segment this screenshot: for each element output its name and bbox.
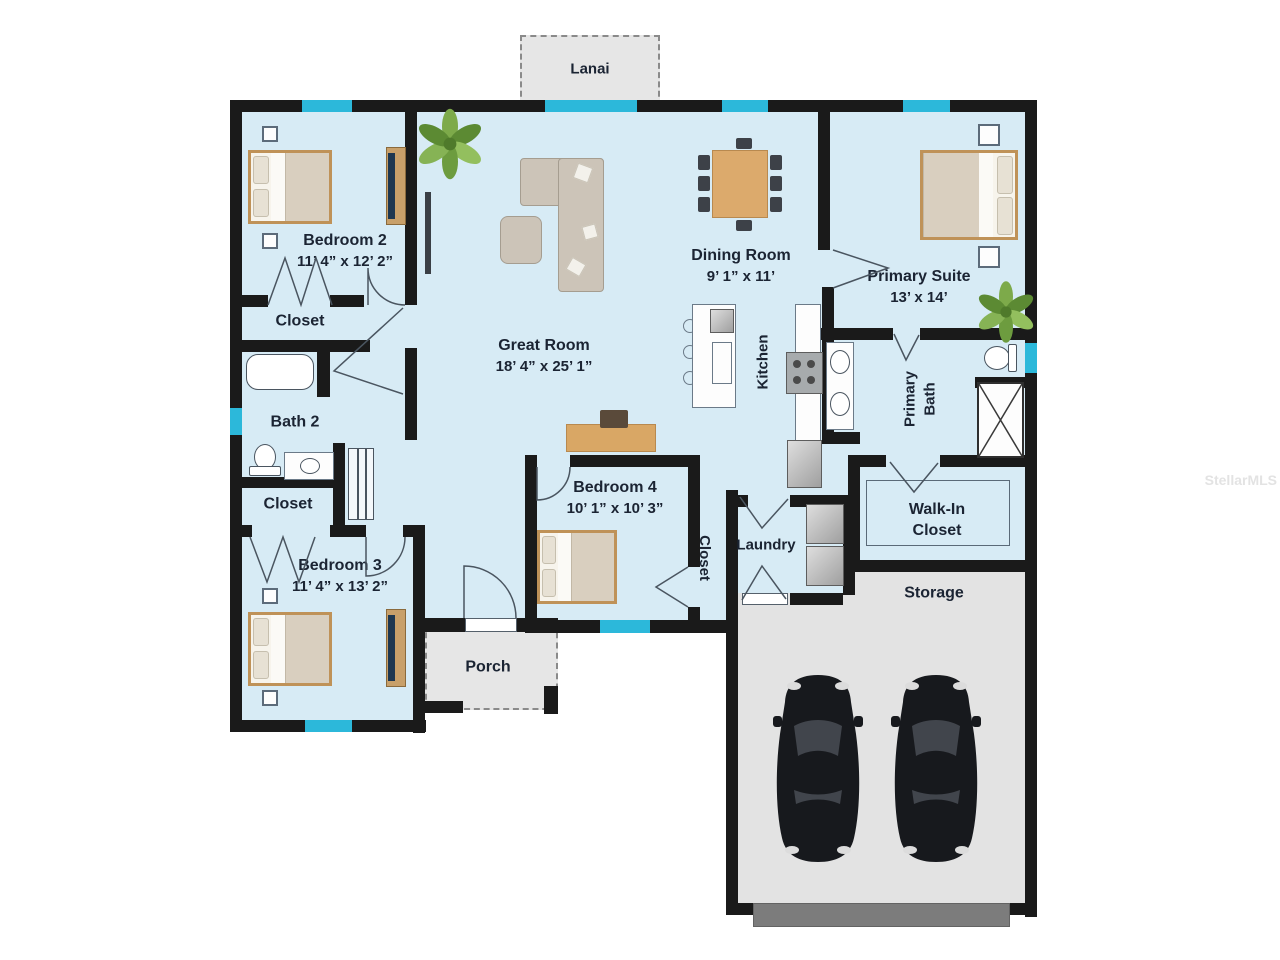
room-dims: 18’ 4” x 25’ 1”	[496, 357, 593, 377]
ottoman-icon	[500, 216, 542, 264]
wall	[403, 525, 425, 537]
wall	[848, 460, 860, 563]
sink-icon	[710, 309, 734, 333]
room-name-line2: Closet	[909, 521, 965, 542]
island-cabinet-icon	[712, 342, 732, 384]
shower-icon	[977, 382, 1024, 458]
wall	[330, 525, 366, 537]
room-name: Bedroom 2	[297, 231, 393, 252]
wall	[242, 340, 370, 352]
wall	[790, 593, 843, 605]
room-name: Lanai	[570, 59, 609, 79]
wall	[570, 455, 688, 467]
wall	[413, 537, 425, 733]
wall	[242, 525, 252, 537]
room-label-porch: Porch	[465, 658, 510, 679]
dryer-icon	[806, 546, 844, 586]
room-name: Laundry	[736, 535, 795, 555]
linen-closet-icon	[348, 448, 374, 520]
room-dims: 11’ 4” x 12’ 2”	[297, 252, 393, 272]
chair-icon	[770, 155, 782, 170]
room-label-bath-2: Bath 2	[271, 413, 320, 434]
wall	[818, 100, 830, 250]
room-name: Dining Room	[691, 246, 791, 267]
room-name: Bath 2	[271, 413, 320, 434]
tv-icon	[388, 615, 395, 681]
room-name: Closet	[694, 535, 714, 581]
tv-icon	[425, 192, 431, 274]
nightstand-icon	[262, 126, 278, 142]
window	[230, 408, 242, 435]
room-label-dining-room: Dining Room 9’ 1” x 11’	[691, 246, 791, 286]
wall	[405, 348, 417, 440]
bathtub-icon	[246, 354, 314, 390]
room-label-storage: Storage	[904, 584, 964, 605]
front-door	[465, 618, 517, 632]
room-name-line1: Primary	[901, 371, 921, 427]
wall	[728, 495, 748, 507]
window	[1025, 343, 1037, 373]
window	[722, 100, 768, 112]
stellar-mls-watermark: StellarMLS	[1205, 472, 1277, 488]
room-label-primary-suite: Primary Suite 13’ x 14’	[867, 267, 970, 307]
floor-plan: Lanai Bedroom 2 11’ 4” x 12’ 2” Closet B…	[0, 0, 1280, 960]
nightstand-icon	[262, 588, 278, 604]
desk-icon	[566, 424, 656, 452]
wall	[822, 432, 860, 444]
room-label-great-room: Great Room 18’ 4” x 25’ 1”	[496, 336, 593, 376]
room-label-bedroom3-closet: Closet	[264, 495, 313, 516]
chair-icon	[600, 410, 628, 428]
room-dims: 11’ 4” x 13’ 2”	[292, 577, 388, 597]
garage-door	[753, 903, 1010, 927]
wall	[726, 572, 738, 915]
chair-icon	[736, 220, 752, 231]
room-label-walk-in-closet: Walk-In Closet	[909, 500, 965, 542]
chair-icon	[770, 197, 782, 212]
bed-icon	[248, 150, 332, 224]
chair-icon	[698, 155, 710, 170]
chair-icon	[736, 138, 752, 149]
nightstand-icon	[978, 124, 1000, 146]
stove-icon	[786, 352, 823, 394]
sink-icon	[830, 350, 850, 374]
washer-icon	[806, 504, 844, 544]
tv-icon	[388, 153, 395, 219]
window	[903, 100, 950, 112]
sink-icon	[830, 392, 850, 416]
wall	[317, 340, 330, 397]
room-label-bedroom4-closet: Closet	[694, 535, 714, 581]
wall	[425, 618, 467, 632]
garage-floor	[738, 565, 1025, 903]
bed-icon	[537, 530, 617, 604]
fridge-icon	[787, 440, 822, 488]
wall	[848, 560, 1025, 572]
room-label-bedroom-4: Bedroom 4 10’ 1” x 10’ 3”	[567, 478, 664, 518]
room-name: Closet	[276, 312, 325, 333]
dining-table-icon	[712, 150, 768, 218]
wall	[330, 295, 364, 307]
room-name: Bedroom 4	[567, 478, 664, 499]
toilet-icon	[984, 346, 1010, 370]
room-name: Primary Suite	[867, 267, 970, 288]
sink-icon	[300, 458, 320, 474]
room-label-kitchen: Kitchen	[753, 334, 773, 389]
nightstand-icon	[262, 233, 278, 249]
toilet-tank-icon	[249, 466, 281, 476]
toilet-tank-icon	[1008, 344, 1017, 372]
wall	[525, 455, 537, 620]
room-name-line2: Bath	[920, 371, 940, 427]
room-name: Porch	[465, 658, 510, 679]
wall	[920, 328, 1025, 340]
wall	[405, 100, 417, 305]
window	[302, 100, 352, 112]
room-dims: 13’ x 14’	[867, 288, 970, 308]
room-dims: 9’ 1” x 11’	[691, 267, 791, 287]
room-name: Storage	[904, 584, 964, 605]
wall	[517, 618, 558, 632]
room-label-lanai: Lanai	[570, 59, 609, 79]
chair-icon	[698, 197, 710, 212]
room-name-line1: Walk-In	[909, 500, 965, 521]
room-name: Closet	[264, 495, 313, 516]
window	[305, 720, 352, 732]
room-name: Bedroom 3	[292, 556, 388, 577]
wall	[333, 443, 345, 537]
nightstand-icon	[978, 246, 1000, 268]
chair-icon	[770, 176, 782, 191]
bed-icon	[248, 612, 332, 686]
room-label-laundry: Laundry	[736, 535, 795, 555]
room-label-bedroom2-closet: Closet	[276, 312, 325, 333]
room-name: Kitchen	[753, 334, 773, 389]
wall	[688, 607, 700, 633]
room-label-bedroom-3: Bedroom 3 11’ 4” x 13’ 2”	[292, 556, 388, 596]
room-dims: 10’ 1” x 10’ 3”	[567, 499, 664, 519]
wall	[544, 686, 558, 714]
room-label-primary-bath: Primary Bath	[901, 371, 940, 427]
window	[600, 620, 650, 633]
chair-icon	[698, 176, 710, 191]
wall	[425, 701, 463, 713]
wall	[242, 295, 268, 307]
sliding-door-window	[545, 100, 637, 112]
room-name: Great Room	[496, 336, 593, 357]
garage-entry-door	[742, 593, 788, 605]
wall	[1025, 100, 1037, 917]
nightstand-icon	[262, 690, 278, 706]
room-label-bedroom-2: Bedroom 2 11’ 4” x 12’ 2”	[297, 231, 393, 271]
bed-icon	[920, 150, 1018, 240]
